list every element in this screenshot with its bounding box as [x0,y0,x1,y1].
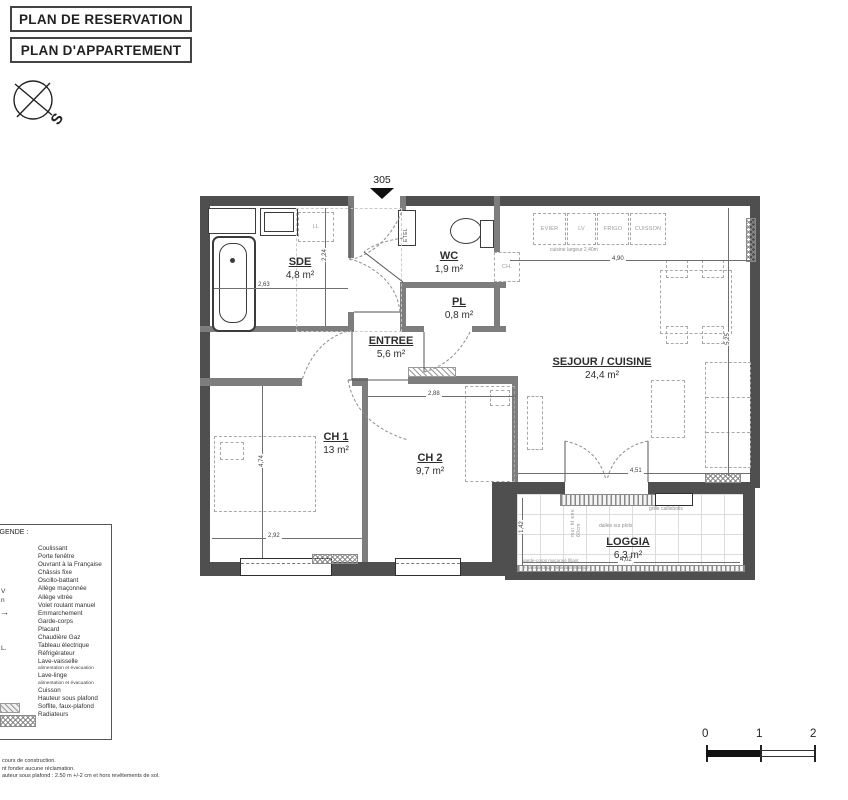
title-plan-appartement: PLAN D'APPARTEMENT [10,37,192,63]
legend-item: Chaudière Gaz [38,634,102,642]
dim-ch1-w: 2,92 [266,533,282,539]
title-plan-reservation: PLAN DE RESERVATION [10,6,192,32]
dim-kitchen-w: 4,90 [610,256,626,262]
legend-item-note: alimentation et évacuation [38,681,102,687]
scale-bar: 0 1 2 [698,728,828,770]
scale-2: 2 [810,728,816,740]
dim-sejour-h: 5,25 [725,332,731,346]
room-ch2-area: 9,7 m² [416,466,444,477]
legend-item: Porte fenêtre [38,553,102,561]
room-wc-name: WC [440,250,458,262]
footer-notes: cours de construction. nt fonder aucune … [2,758,160,781]
dim-ch1-h: 4,74 [259,454,265,468]
compass-icon: S [6,74,70,134]
floor-plan: grille caillebotis dalles sur plots mur … [200,196,760,588]
legend-item: Garde-corps [38,618,102,626]
legend-item: Ouvrant à la Française [38,561,102,569]
scale-segment-open [760,750,814,757]
legend-radiator-swatch [0,715,36,727]
footer-note-line: auteur sous plafond : 2.50 m +/-2 cm et … [2,773,160,781]
legend-item: Réfrigérateur [38,650,102,658]
dim-sde-w: 2,63 [256,282,272,288]
dim-line-ch1-w [212,538,362,539]
room-loggia-area: 6,3 m² [614,550,642,561]
room-sde-area: 4,8 m² [286,270,314,281]
dim-line-sde-w [214,288,348,289]
title-plan-appartement-label: PLAN D'APPARTEMENT [21,43,182,58]
legend-item: Soffite, faux-plafond [38,703,102,711]
legend-arrow-icon: → [0,607,9,617]
legend-item: Emmarchement [38,610,102,618]
dim-sde-h: 2,24 [322,248,328,262]
room-sejour-area: 24,4 m² [585,370,619,381]
title-plan-reservation-label: PLAN DE RESERVATION [19,12,183,27]
legend-item: Lave-linge [38,672,102,680]
room-entree-area: 5,6 m² [377,349,405,360]
legend-item: Hauteur sous plafond [38,695,102,703]
legend-items: Coulissant Porte fenêtre Ouvrant à la Fr… [38,545,102,719]
room-ch1-name: CH 1 [323,431,348,443]
dim-line-ch2-w [368,396,516,397]
legend-item: Allège maçonnée [38,585,102,593]
room-sde-name: SDE [289,256,312,268]
legend-item: Coulissant [38,545,102,553]
dim-bay-w: 4,51 [628,468,644,474]
legend-item: Oscillo-battant [38,577,102,585]
legend-title: LEGENDE : [0,529,28,536]
legend-symbol-fragment: V [1,588,5,595]
legend-symbol-fragment: L. [1,645,6,652]
room-ch2-name: CH 2 [417,452,442,464]
legend-item: Allège vitrée [38,594,102,602]
unit-number: 305 [366,174,398,186]
legend-item: Radiateurs [38,711,102,719]
room-loggia-name: LOGGIA [606,536,649,548]
compass: S [6,74,70,134]
legend-item: Placard [38,626,102,634]
room-pl-area: 0,8 m² [445,310,473,321]
room-sejour-name: SEJOUR / CUISINE [552,356,651,368]
legend-item: Tableau électrique [38,642,102,650]
scale-0: 0 [702,728,708,740]
dim-loggia-h: 1,42 [519,520,525,534]
dim-line-kitchen [510,260,750,261]
dim-line-ch1-h [262,386,263,558]
scale-tick [814,745,816,762]
room-wc-area: 1,9 m² [435,264,463,275]
room-ch1-area: 13 m² [323,445,349,456]
room-pl-name: PL [452,296,466,308]
door-swings [200,196,760,588]
compass-south-label: S [47,110,67,128]
legend-item: Volet roulant manuel [38,602,102,610]
legend-item: Châssis fixe [38,569,102,577]
footer-note-line: nt fonder aucune réclamation. [2,766,160,774]
dim-line-sde-h [325,208,326,326]
room-entree-name: ENTREE [369,335,414,347]
legend-item: Cuisson [38,687,102,695]
legend-symbol-fragment: n [1,597,5,604]
footer-note-line: cours de construction. [2,758,160,766]
dim-ch2-w: 2,88 [426,391,442,397]
scale-1: 1 [756,728,762,740]
legend-soffite-swatch [0,703,20,713]
scale-segment-filled [706,750,760,757]
